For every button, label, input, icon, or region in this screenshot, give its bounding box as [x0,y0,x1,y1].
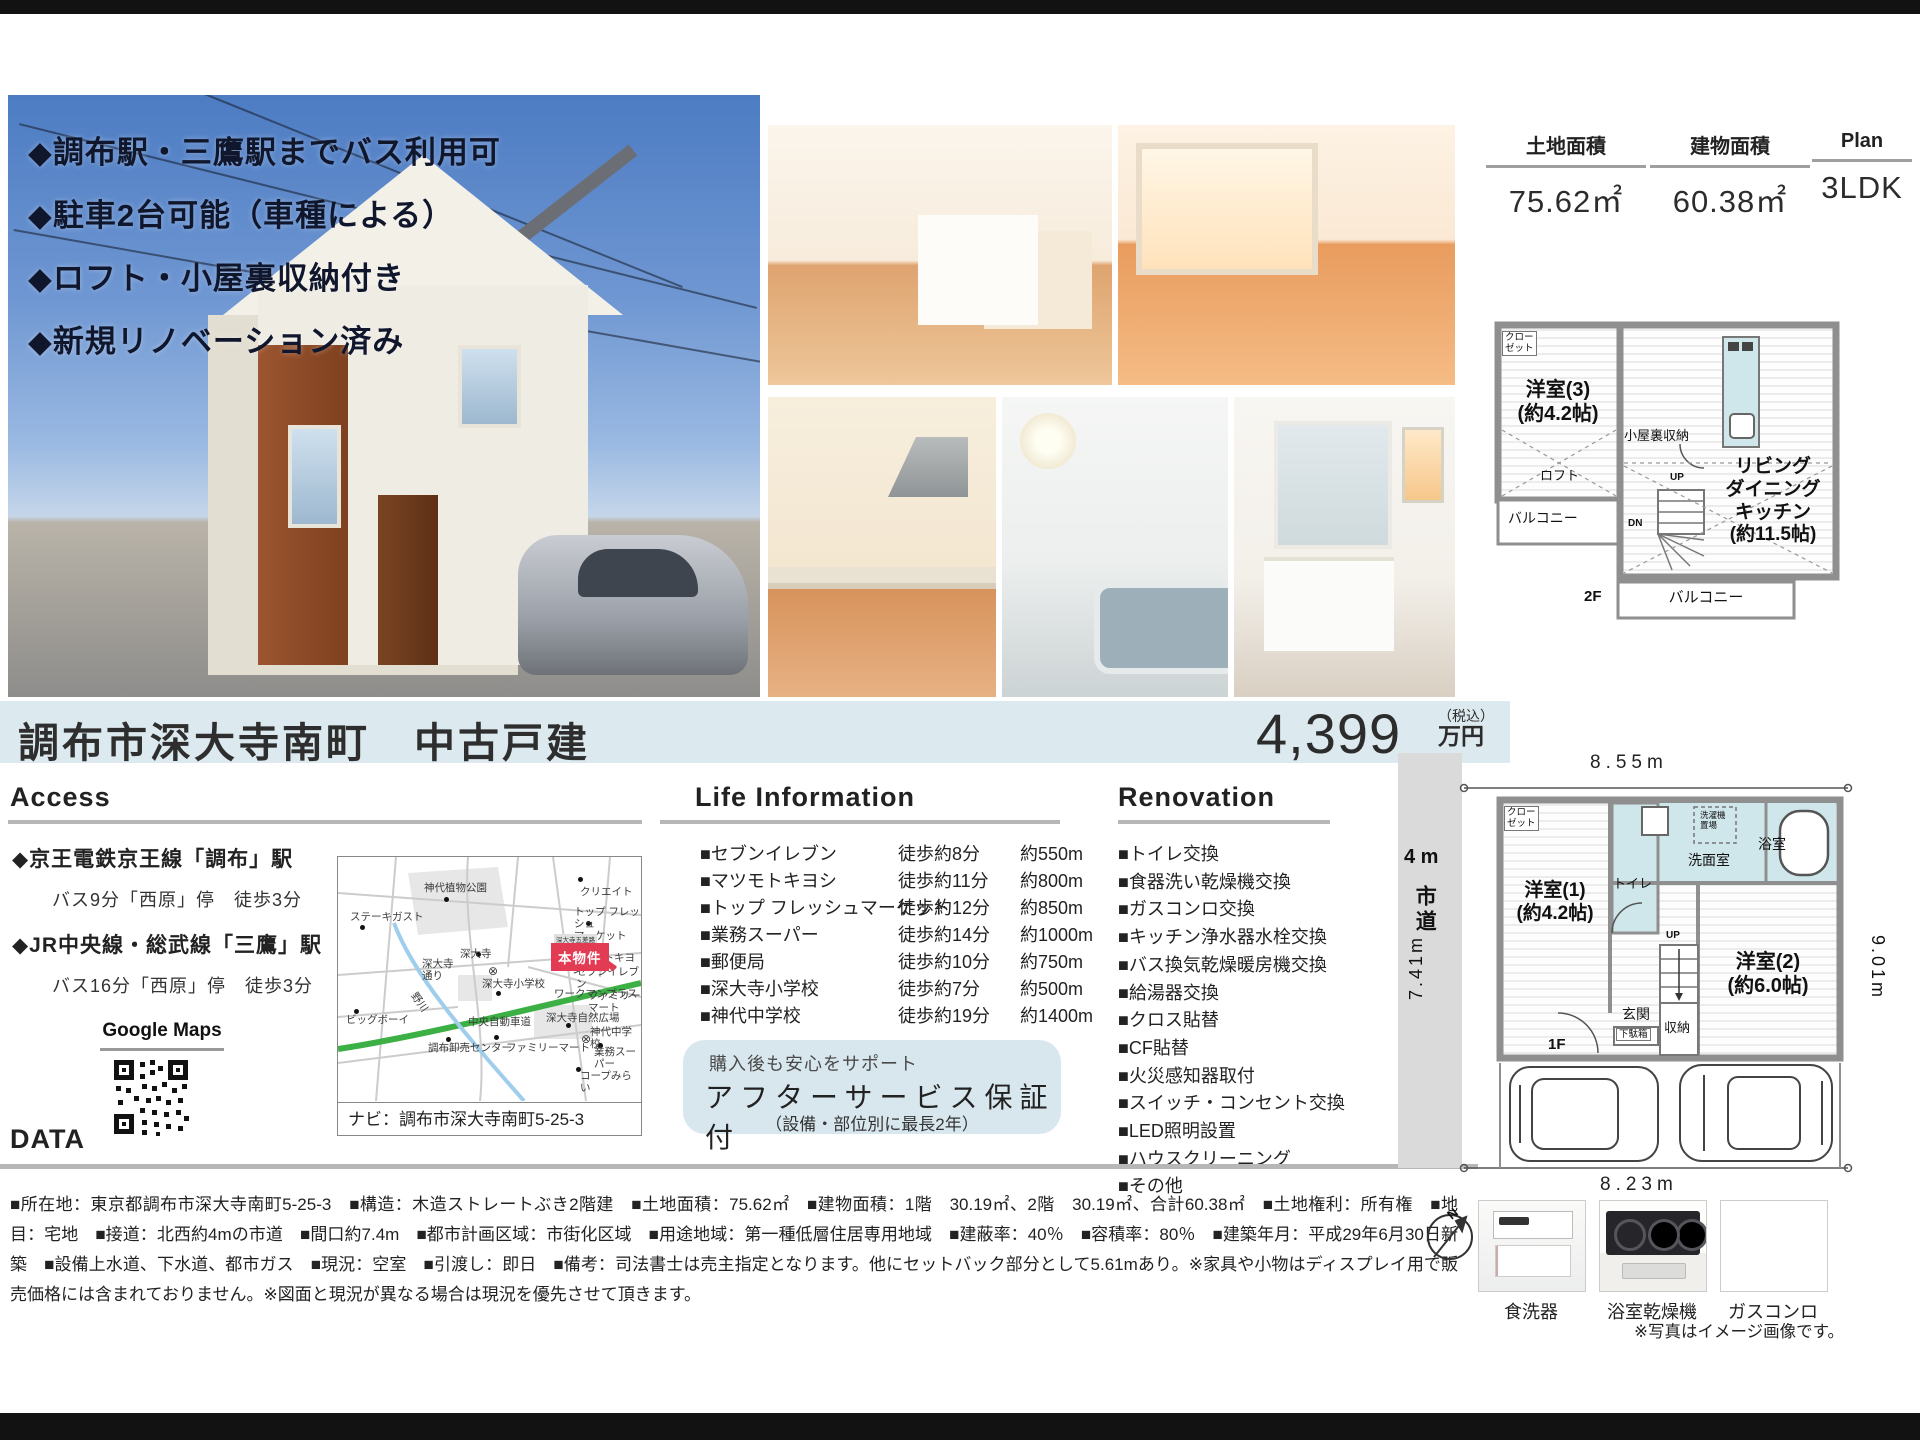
map-poi-label: 神代植物公園 [424,883,487,895]
renovation-item: ■給湯器交換 [1118,979,1219,1005]
map-poi-label: 中央自動車道 [468,1017,531,1029]
map-poi-label: コープみらい [580,1071,641,1095]
plan1f-washroom-label: 洗面室 [1688,852,1730,869]
poi-name: ■トップ フレッシュマーケット [700,894,898,920]
access-underline [8,820,642,824]
station-detail: バス9分「西原」停 徒歩3分 [52,886,302,912]
spec-label: 土地面積 [1486,130,1646,168]
poi-walk-time: 徒歩約11分 [898,867,1020,893]
spec-land-area: 土地面積 75.62㎡ [1486,130,1646,221]
renovation-item: ■クロス貼替 [1118,1006,1219,1032]
photo-disclaimer-note: ※写真はイメージ画像です。 [1500,1318,1844,1342]
tax-note: （税込） [1438,709,1494,724]
spec-label: Plan [1812,130,1912,162]
bathroom-photo [1002,397,1228,697]
plan1f-closet-label: クロー ゼット [1504,806,1539,831]
bottom-black-bar [0,1413,1920,1440]
appliance-detail-shape [1614,1219,1646,1251]
property-location-badge: 本物件 [551,943,609,971]
poi-distance: 約1000m [1020,921,1130,947]
range-hood [888,437,968,497]
poi-walk-time: 徒歩約7分 [898,975,1020,1001]
plan1f-room2-label: 洋室(2) (約6.0帖) [1700,950,1836,998]
poi-distance: 約500m [1020,975,1130,1001]
vanity-window [1402,427,1444,503]
spec-value: 3LDK [1812,170,1912,206]
appliance-image [1599,1200,1707,1292]
plan1f-laundry-label: 洗濯機 置場 [1698,810,1728,830]
renovation-item: ■CF貼替 [1118,1034,1189,1060]
google-maps-label: Google Maps [92,1020,232,1042]
poi-name: ■セブンイレブン [700,840,898,866]
renovation-item: ■食器洗い乾燥機交換 [1118,868,1291,894]
map-poi-dot [444,897,449,902]
plan1f-up-label: UP [1666,930,1680,942]
map-poi-label: 業務スーパー [594,1047,641,1071]
poi-walk-time: 徒歩約10分 [898,948,1020,974]
map-poi-label: 深大寺 [460,949,492,961]
renovation-header: Renovation [1118,782,1275,813]
renovation-underline [1118,820,1330,824]
plan2f-loft-label: ロフト [1540,468,1579,484]
map-poi-label: ビッグボーイ [346,1015,409,1027]
house-window [288,425,341,528]
appliance-image [1478,1200,1586,1292]
road-name-label: 市道 [1412,885,1437,935]
appliance-detail-shape [1622,1263,1686,1279]
site-dim-right: 9.01m [1866,935,1888,1000]
plan2f-ldk-label: リビング ダイニング キッチン (約11.5帖) [1712,456,1834,547]
map-poi-dot [496,991,501,996]
bathtub [1094,582,1228,674]
plan2f-balcony-bottom-label: バルコニー [1618,589,1794,607]
title-bar: 調布市深大寺南町 中古戸建 4,399 （税込） 万円 [0,701,1510,763]
map-poi-label: 深大寺 通り [422,959,454,983]
bedroom-window [1136,143,1318,275]
poi-distance: 約550m [1020,840,1130,866]
appliance-item: ガスコンロ [1720,1200,1826,1324]
map-poi-label: クリエイト [580,887,633,899]
life-info-row: ■マツモトキヨシ 徒歩約11分 約800m [700,867,1130,893]
map-poi-dot [494,1035,499,1040]
photo-bullet: ◆ロフト・小屋裏収納付き [28,247,501,310]
map-poi-label: ⊗ [488,965,498,978]
appliance-detail-shape [1493,1211,1573,1239]
poi-walk-time: 徒歩約19分 [898,1002,1020,1028]
property-flyer: ◆調布駅・三鷹駅までバス利用可◆駐車2台可能（車種による）◆ロフト・小屋裏収納付… [0,0,1920,1440]
plan2f-up-label: UP [1670,472,1684,484]
neighborhood-map: 神代植物公園クリエイトステーキガストトップ フレッシュ マーケットマツモトキヨシ… [337,856,642,1136]
data-header: DATA [10,1124,85,1155]
appliance-item: 食洗器 [1478,1200,1584,1324]
life-info-row: ■深大寺小学校 徒歩約7分 約500m [700,975,1130,1001]
appliance-image [1720,1200,1828,1292]
map-navigation-address: ナビ：調布市深大寺南町5-25-3 [338,1102,641,1135]
spec-label: 建物面積 [1650,130,1810,168]
access-header: Access [10,782,111,813]
map-poi-label: 深大寺小学校 [482,979,545,991]
site-dim-top: 8.55m [1590,752,1668,775]
exterior-photo: ◆調布駅・三鷹駅までバス利用可◆駐車2台可能（車種による）◆ロフト・小屋裏収納付… [8,95,760,697]
station-name: ◆京王電鉄京王線「調布」駅 [12,843,293,873]
poi-distance: 約1400m [1020,1002,1130,1028]
plan1f-toilet-label: トイレ [1613,876,1652,892]
vanity-basin [1264,557,1394,651]
kitchen-island [918,215,1038,325]
map-poi-label: 調布卸売センター [428,1043,512,1055]
map-poi-dot [360,925,365,930]
map-poi-dot [578,877,583,882]
after-service-box: 購入後も安心をサポート アフターサービス保証付 （設備・部位別に最長2年） [683,1040,1061,1134]
plan1f-storage-label: 収納 [1664,1020,1690,1036]
vanity-photo [1234,397,1455,697]
poi-walk-time: 徒歩約14分 [898,921,1020,947]
poi-distance: 約850m [1020,894,1130,920]
station-name: ◆JR中央線・総武線「三鷹」駅 [12,929,322,959]
renovation-item: ■バス換気乾燥暖房機交換 [1118,951,1327,977]
renovation-item: ■キッチン浄水器水栓交換 [1118,923,1327,949]
service-caption: 購入後も安心をサポート [709,1050,918,1076]
kitchen-counter [768,567,996,583]
price-value: 4,399 [1256,701,1401,766]
life-info-row: ■神代中学校 徒歩約19分 約1400m [700,1002,1130,1028]
life-info-header: Life Information [695,782,915,813]
photo-bullet-list: ◆調布駅・三鷹駅までバス利用可◆駐車2台可能（車種による）◆ロフト・小屋裏収納付… [28,121,501,373]
data-underline [0,1164,1478,1169]
parked-car [518,535,748,675]
appliance-item: 浴室乾燥機 [1599,1200,1705,1324]
qr-code [112,1058,190,1136]
ldk-photo [768,125,1112,385]
bathroom-light [1020,413,1076,469]
plan1f-room1-label: 洋室(1) (約4.2帖) [1500,880,1610,926]
life-info-underline [660,820,1060,824]
poi-name: ■神代中学校 [700,1002,898,1028]
property-data-text: ■所在地：東京都調布市深大寺南町5-25-3 ■構造：木造ストレートぶき2階建 … [10,1190,1458,1310]
plan1f-shoebox-label: 下駄箱 [1616,1028,1651,1041]
map-poi-label: ステーキガスト [350,912,424,924]
map-poi-label: ファミリー マート [588,991,641,1015]
price-unit-block: （税込） 万円 [1438,709,1494,750]
renovation-item: ■スイッチ・コンセント交換 [1118,1089,1345,1115]
poi-distance: 約750m [1020,948,1130,974]
spec-value: 75.62㎡ [1486,176,1646,221]
life-info-row: ■セブンイレブン 徒歩約8分 約550m [700,840,1130,866]
site-dim-bottom: 8.23m [1600,1174,1678,1197]
map-poi-label: ファミリーマート [506,1043,590,1055]
bedroom-photo [1118,125,1455,385]
poi-name: ■マツモトキヨシ [700,867,898,893]
service-note: （設備・部位別に最長2年） [683,1110,1061,1135]
station-detail: バス16分「西原」停 徒歩3分 [52,972,313,998]
plan1f-floor-label: 1F [1548,1036,1566,1054]
renovation-item: ■トイレ交換 [1118,840,1219,866]
spec-value: 60.38㎡ [1650,176,1810,221]
photo-bullet: ◆駐車2台可能（車種による） [28,184,501,247]
plan2f-floor-label: 2F [1584,588,1602,606]
google-maps-underline [100,1048,224,1051]
map-poi-label: 深大寺自然広場 [546,1013,620,1025]
plan2f-balcony-side-label: バルコニー [1508,510,1578,527]
car-windshield [578,549,698,597]
renovation-item: ■火災感知器取付 [1118,1062,1255,1088]
road-width-label: 4 m [1404,845,1438,869]
spec-plan: Plan 3LDK [1812,130,1912,206]
plan2f-room3-label: 洋室(3) (約4.2帖) [1498,378,1618,426]
appliance-list: 食洗器 浴室乾燥機 ガスコンロ [1478,1200,1838,1324]
appliance-detail-shape [1495,1245,1571,1277]
life-info-row: ■トップ フレッシュマーケット 徒歩約12分 約850m [700,894,1130,920]
site-dim-left: 7.41m [1406,935,1428,1000]
plan2f-closet-label: クロー ゼット [1502,331,1537,356]
poi-walk-time: 徒歩約12分 [898,894,1020,920]
photo-bullet: ◆調布駅・三鷹駅までバス利用可 [28,121,501,184]
poi-name: ■業務スーパー [700,921,898,947]
photo-bullet: ◆新規リノベーション済み [28,310,501,373]
life-info-row: ■郵便局 徒歩約10分 約750m [700,948,1130,974]
property-title: 調布市深大寺南町 中古戸建 [18,709,590,769]
house-door [378,495,438,665]
plan2f-dn-label: DN [1628,518,1642,530]
life-info-row: ■業務スーパー 徒歩約14分 約1000m [700,921,1130,947]
appliance-detail-shape [1499,1217,1529,1225]
poi-name: ■深大寺小学校 [700,975,898,1001]
plan1f-entrance-label: 玄関 [1622,1006,1650,1023]
plan2f-attic-label: 小屋裏収納 [1624,428,1689,444]
poi-walk-time: 徒歩約8分 [898,840,1020,866]
poi-distance: 約800m [1020,867,1130,893]
renovation-item: ■LED照明設置 [1118,1117,1236,1143]
renovation-item: ■ガスコンロ交換 [1118,895,1255,921]
vanity-mirror [1274,421,1392,549]
kitchen-photo [768,397,996,697]
plan1f-bath-label: 浴室 [1758,836,1786,853]
top-black-bar [0,0,1920,14]
spec-building-area: 建物面積 60.38㎡ [1650,130,1810,221]
poi-name: ■郵便局 [700,948,898,974]
